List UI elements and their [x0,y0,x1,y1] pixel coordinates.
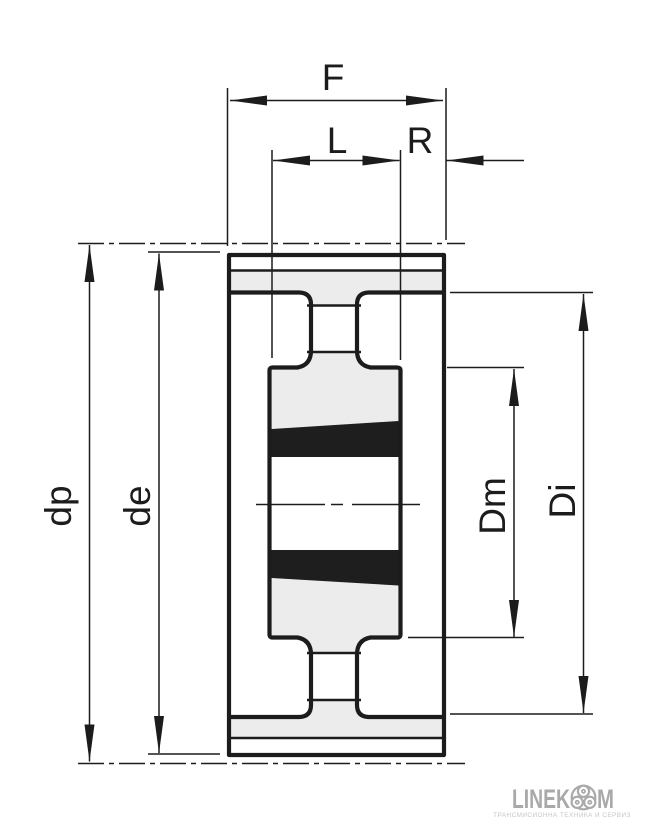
three-circles-pulley-icon [572,786,596,810]
label-Di: Di [542,484,583,519]
logo-tagline: ТРАНСМИСИОННА ТЕХНИКА И СЕРВИЗ [493,812,631,819]
label-de: de [117,485,158,526]
label-R: R [407,120,434,161]
label-L: L [327,120,348,161]
drawing-page: F L R dp de Dm Di LINEK M ТРАНСМИСИОННА … [0,0,654,833]
label-Dm: Dm [472,477,513,535]
pulley-cross-section-figure: F L R dp de Dm Di LINEK M ТРАНСМИСИОННА … [0,0,654,833]
bottom-rim-band [229,716,444,738]
bore-area [271,457,399,551]
label-F: F [322,57,345,98]
logo-text-right: M [597,784,614,814]
label-dp: dp [38,485,79,526]
logo-text-left: LINEK [512,784,570,814]
linekom-logo: LINEK M ТРАНСМИСИОННА ТЕХНИКА И СЕРВИЗ [493,784,631,819]
top-rim-band [229,270,444,292]
